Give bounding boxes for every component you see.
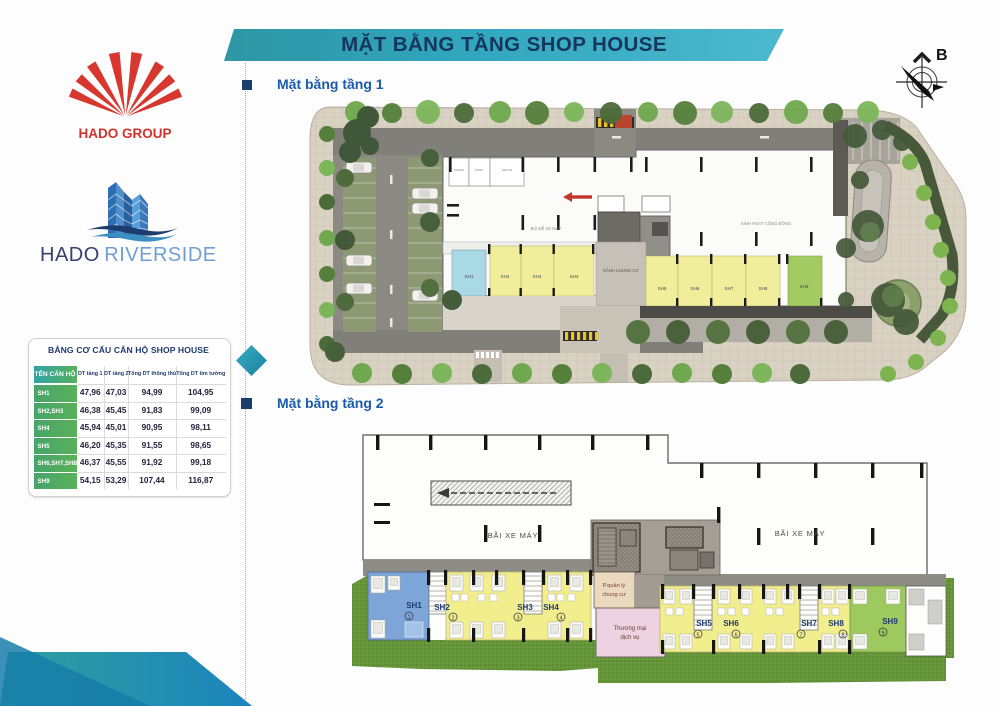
svg-text:5: 5: [696, 633, 699, 639]
svg-text:P.quản lý: P.quản lý: [603, 583, 626, 589]
svg-text:BÃI XE MÁY: BÃI XE MÁY: [775, 529, 826, 538]
svg-text:SH5: SH5: [696, 619, 712, 628]
svg-text:6: 6: [734, 633, 737, 639]
svg-text:SH4: SH4: [543, 603, 559, 612]
svg-text:2: 2: [451, 616, 454, 622]
svg-text:SH1: SH1: [406, 601, 422, 610]
svg-text:chung cư: chung cư: [602, 592, 626, 598]
svg-text:4: 4: [559, 616, 562, 622]
svg-text:3: 3: [516, 616, 519, 622]
svg-text:SH9: SH9: [882, 617, 898, 626]
svg-text:SH3: SH3: [517, 603, 533, 612]
svg-text:9: 9: [881, 631, 884, 637]
svg-text:7: 7: [799, 633, 802, 639]
svg-text:1: 1: [407, 615, 410, 621]
svg-text:SH8: SH8: [828, 619, 844, 628]
svg-text:BÃI XE MÁY: BÃI XE MÁY: [488, 531, 539, 540]
svg-text:SH2: SH2: [434, 603, 450, 612]
svg-text:B: B: [936, 47, 948, 64]
svg-text:Thương mại: Thương mại: [614, 626, 647, 632]
svg-text:SH6: SH6: [723, 619, 739, 628]
svg-text:SH7: SH7: [801, 619, 817, 628]
svg-text:8: 8: [841, 633, 844, 639]
svg-text:dịch vụ: dịch vụ: [620, 635, 639, 641]
